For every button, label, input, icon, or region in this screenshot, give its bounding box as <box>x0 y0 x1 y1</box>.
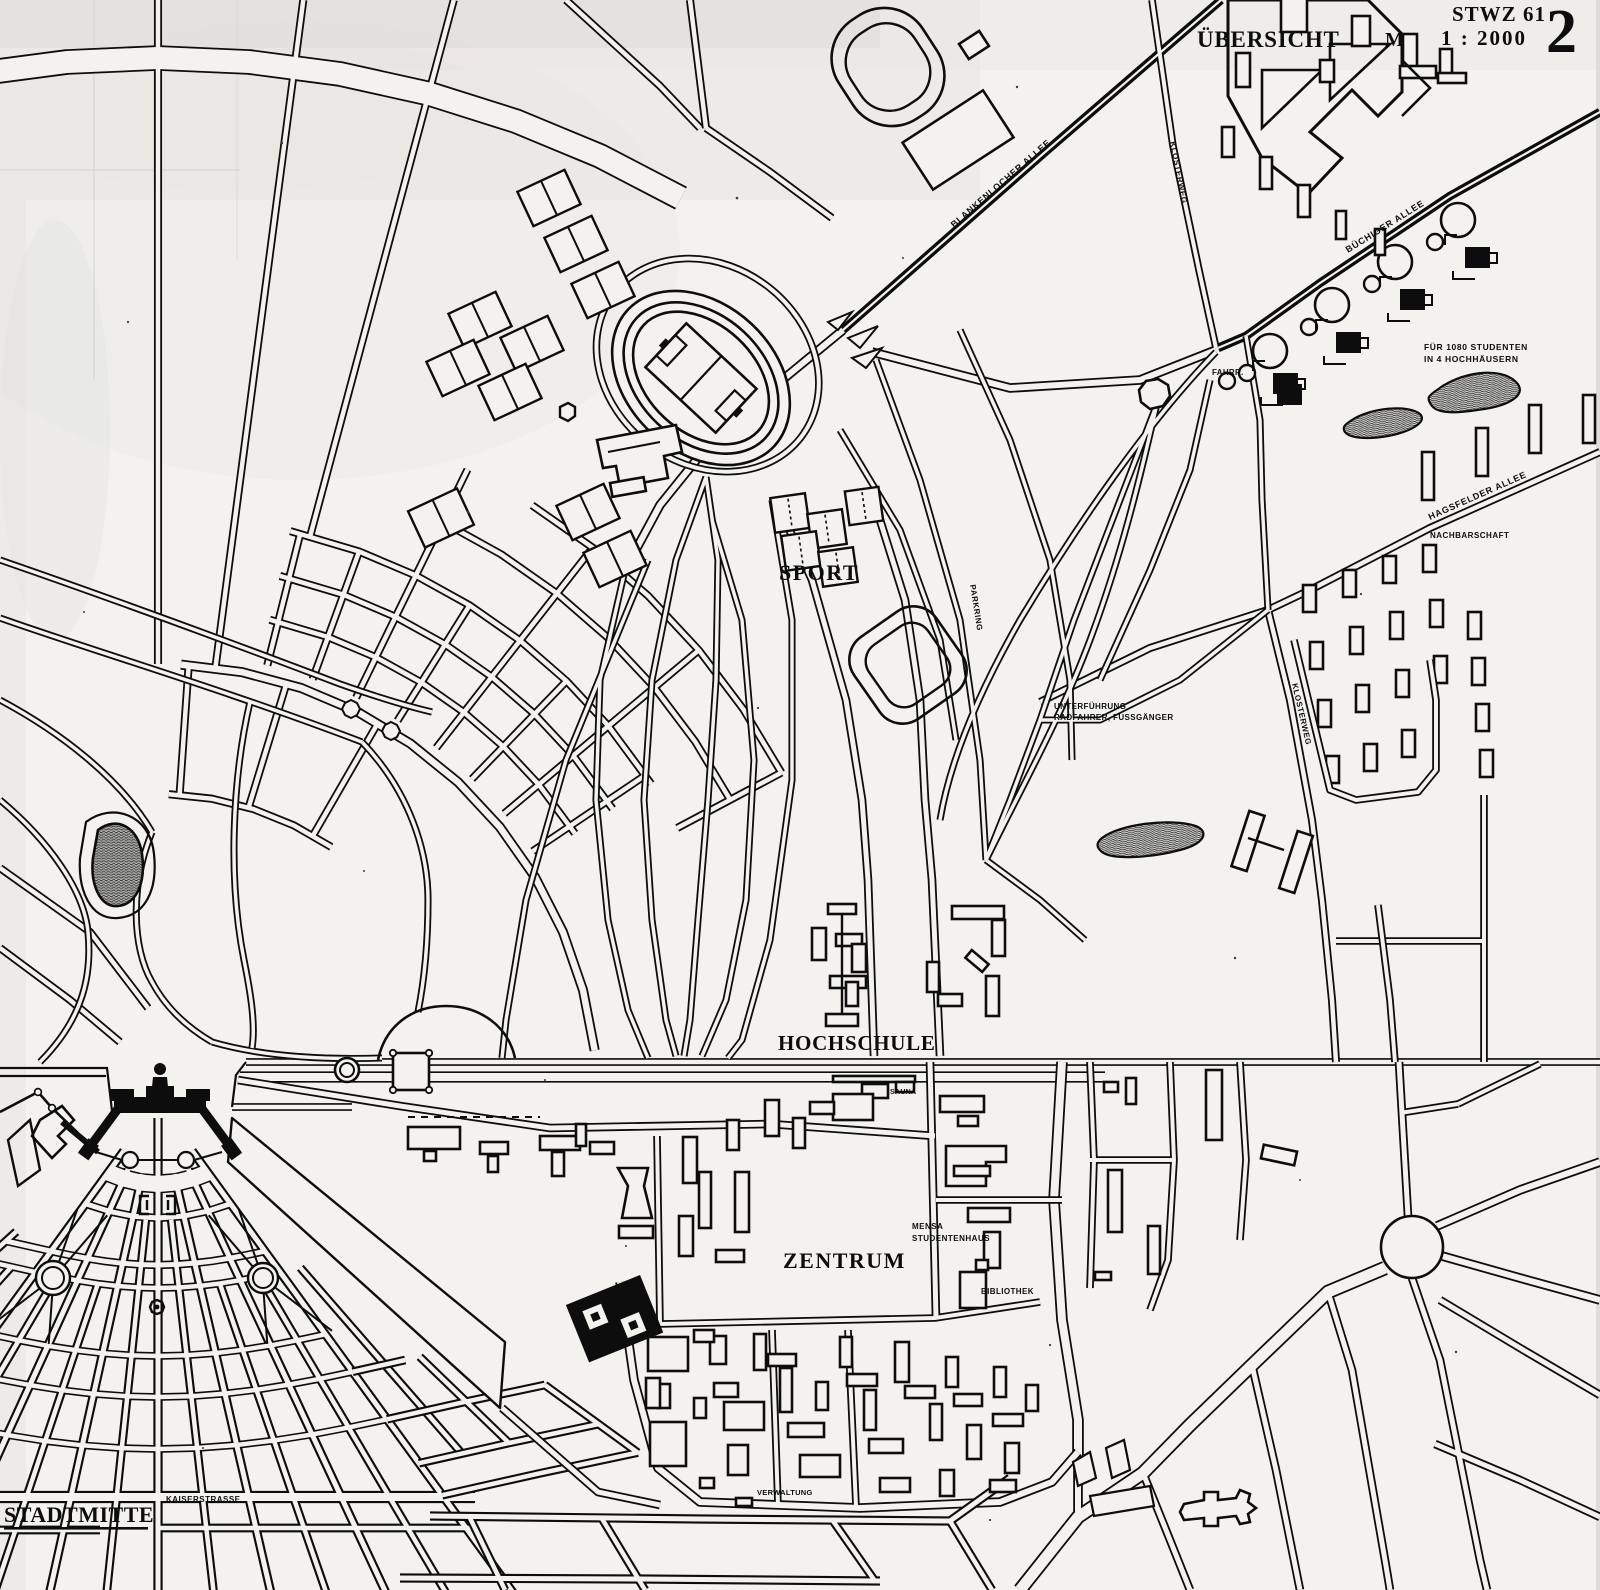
svg-text:SPORT: SPORT <box>779 560 859 585</box>
svg-text:BIBLIOTHEK: BIBLIOTHEK <box>981 1287 1034 1296</box>
svg-text:VERWALTUNG: VERWALTUNG <box>757 1488 813 1497</box>
svg-text:UNTERFÜHRUNG: UNTERFÜHRUNG <box>1054 702 1126 711</box>
svg-text:KAISERSTRASSE: KAISERSTRASSE <box>166 1495 241 1504</box>
svg-text:ZENTRUM: ZENTRUM <box>783 1248 906 1273</box>
svg-text:STUDENTENHAUS: STUDENTENHAUS <box>912 1234 990 1243</box>
svg-text:FAHRR.: FAHRR. <box>1212 368 1244 377</box>
svg-text:STWZ 61: STWZ 61 <box>1452 2 1546 26</box>
svg-text:MENSA: MENSA <box>912 1222 943 1231</box>
svg-text:2: 2 <box>1546 0 1577 66</box>
svg-text:HOCHSCHULE: HOCHSCHULE <box>778 1031 936 1055</box>
svg-text:STADTMITTE: STADTMITTE <box>4 1502 154 1527</box>
svg-text:SAUNA: SAUNA <box>890 1089 916 1096</box>
svg-text:RADFAHRER, FUSSGÄNGER: RADFAHRER, FUSSGÄNGER <box>1054 713 1174 722</box>
svg-text:1 : 2000: 1 : 2000 <box>1441 26 1527 50</box>
svg-text:M: M <box>1385 29 1405 51</box>
svg-text:NACHBARSCHAFT: NACHBARSCHAFT <box>1430 531 1509 540</box>
svg-text:IN 4 HOCHHÄUSERN: IN 4 HOCHHÄUSERN <box>1424 354 1519 364</box>
svg-text:FÜR 1080 STUDENTEN: FÜR 1080 STUDENTEN <box>1424 342 1528 352</box>
svg-text:ÜBERSICHT: ÜBERSICHT <box>1197 27 1340 52</box>
